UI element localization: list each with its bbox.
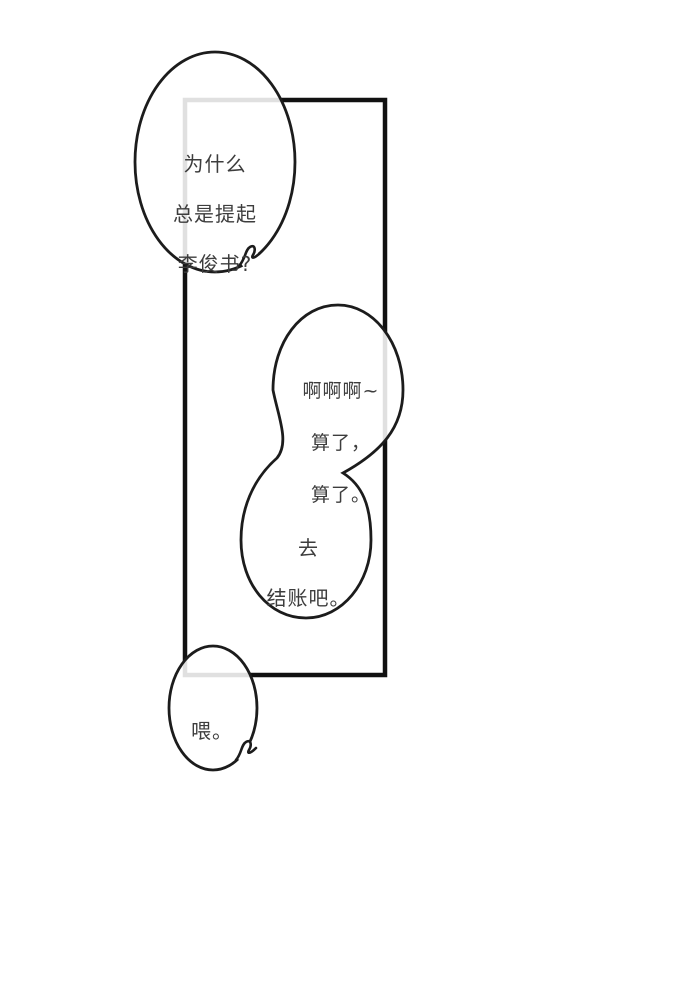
- bubble-text-line: 结账吧。: [236, 586, 381, 611]
- bubble-2-text: 啊啊啊~ 算了， 算了。: [262, 352, 420, 534]
- bubble-text-line: 为什么: [135, 152, 295, 177]
- bubble-text-line: 算了，: [262, 430, 420, 456]
- bubble-text-line: 算了。: [262, 482, 420, 508]
- bubble-1-text: 为什么 总是提起 李俊书?: [135, 127, 295, 302]
- bubble-text-line: 总是提起: [135, 202, 295, 227]
- bubble-3-text: 去 结账吧。: [236, 511, 381, 636]
- comic-page: 为什么 总是提起 李俊书? 啊啊啊~ 算了， 算了。 去 结账吧。 喂。: [0, 0, 690, 986]
- bubble-4-text: 喂。: [153, 695, 271, 767]
- bubble-text-line: 喂。: [153, 719, 271, 743]
- bubble-text-line: 李俊书?: [135, 252, 295, 277]
- bubble-text-line: 啊啊啊~: [262, 378, 420, 404]
- bubble-text-line: 去: [236, 536, 381, 561]
